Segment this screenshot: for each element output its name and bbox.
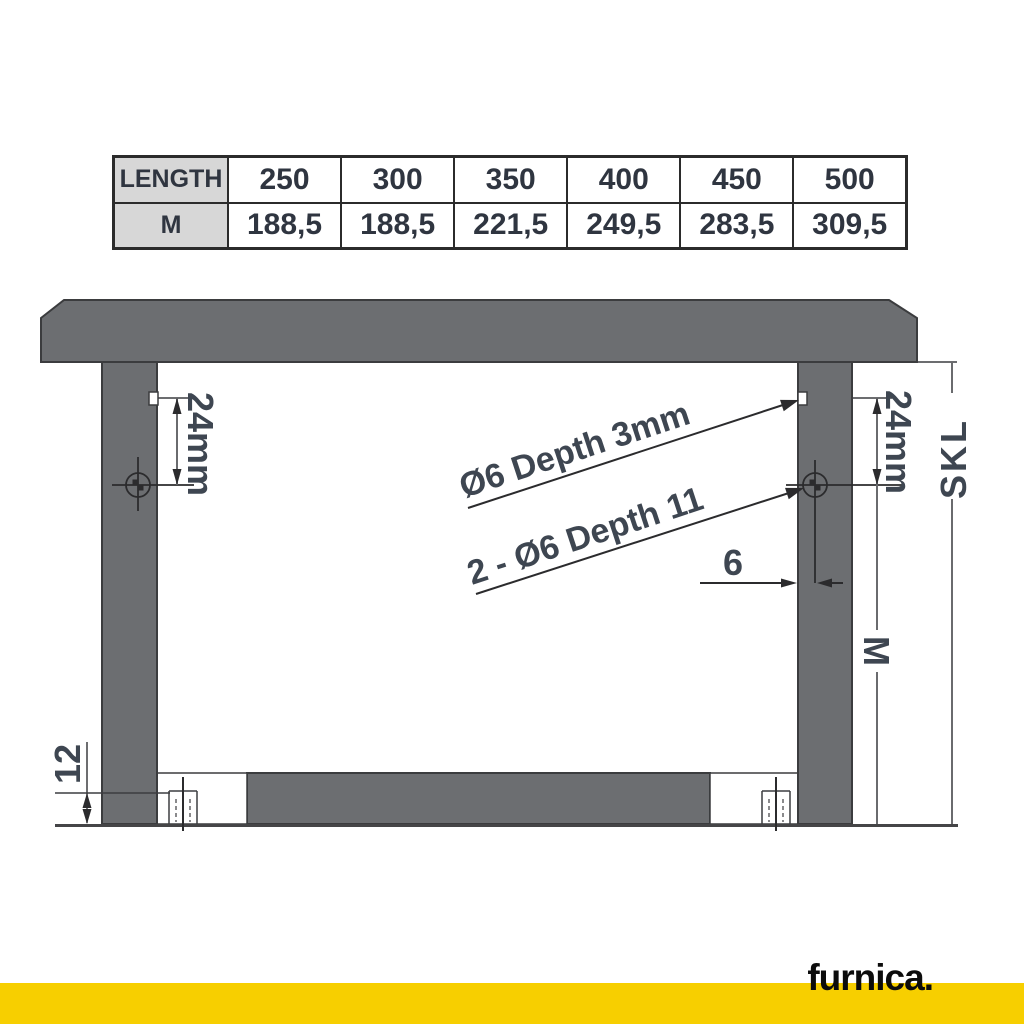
hole-notch-left xyxy=(149,392,158,405)
dimension-skl: SKL xyxy=(917,362,974,824)
label-6: 6 xyxy=(723,542,743,583)
dimension-12mm: 12 xyxy=(47,742,92,824)
label-skl: SKL xyxy=(933,418,974,499)
callout-side-holes: 2 - Ø6 Depth 11 xyxy=(463,480,806,594)
label-12: 12 xyxy=(47,744,88,784)
right-side-panel xyxy=(798,362,852,824)
top-panel xyxy=(41,300,917,362)
page: LENGTH 250 300 350 400 450 500 M 188,5 1… xyxy=(0,0,1024,1024)
label-left-24mm: 24mm xyxy=(180,392,221,496)
callout-top-hole: Ø6 Depth 3mm xyxy=(455,394,801,508)
bottom-notch-right xyxy=(710,773,798,824)
left-side-panel xyxy=(102,362,157,824)
label-m: M xyxy=(856,636,897,666)
hole-notch-right xyxy=(798,392,807,405)
technical-drawing: 24mm 24mm M SKL 6 xyxy=(0,0,1024,1024)
label-hole-top: Ø6 Depth 3mm xyxy=(455,395,695,506)
bottom-notch-left xyxy=(157,773,247,824)
dimension-left-24mm: 24mm xyxy=(158,392,221,496)
drawer-bottom-panel xyxy=(247,773,710,824)
brand-logo: furnica. xyxy=(807,957,933,999)
dimension-right-24mm-M: 24mm M xyxy=(852,390,919,824)
label-right-24mm: 24mm xyxy=(878,390,919,494)
